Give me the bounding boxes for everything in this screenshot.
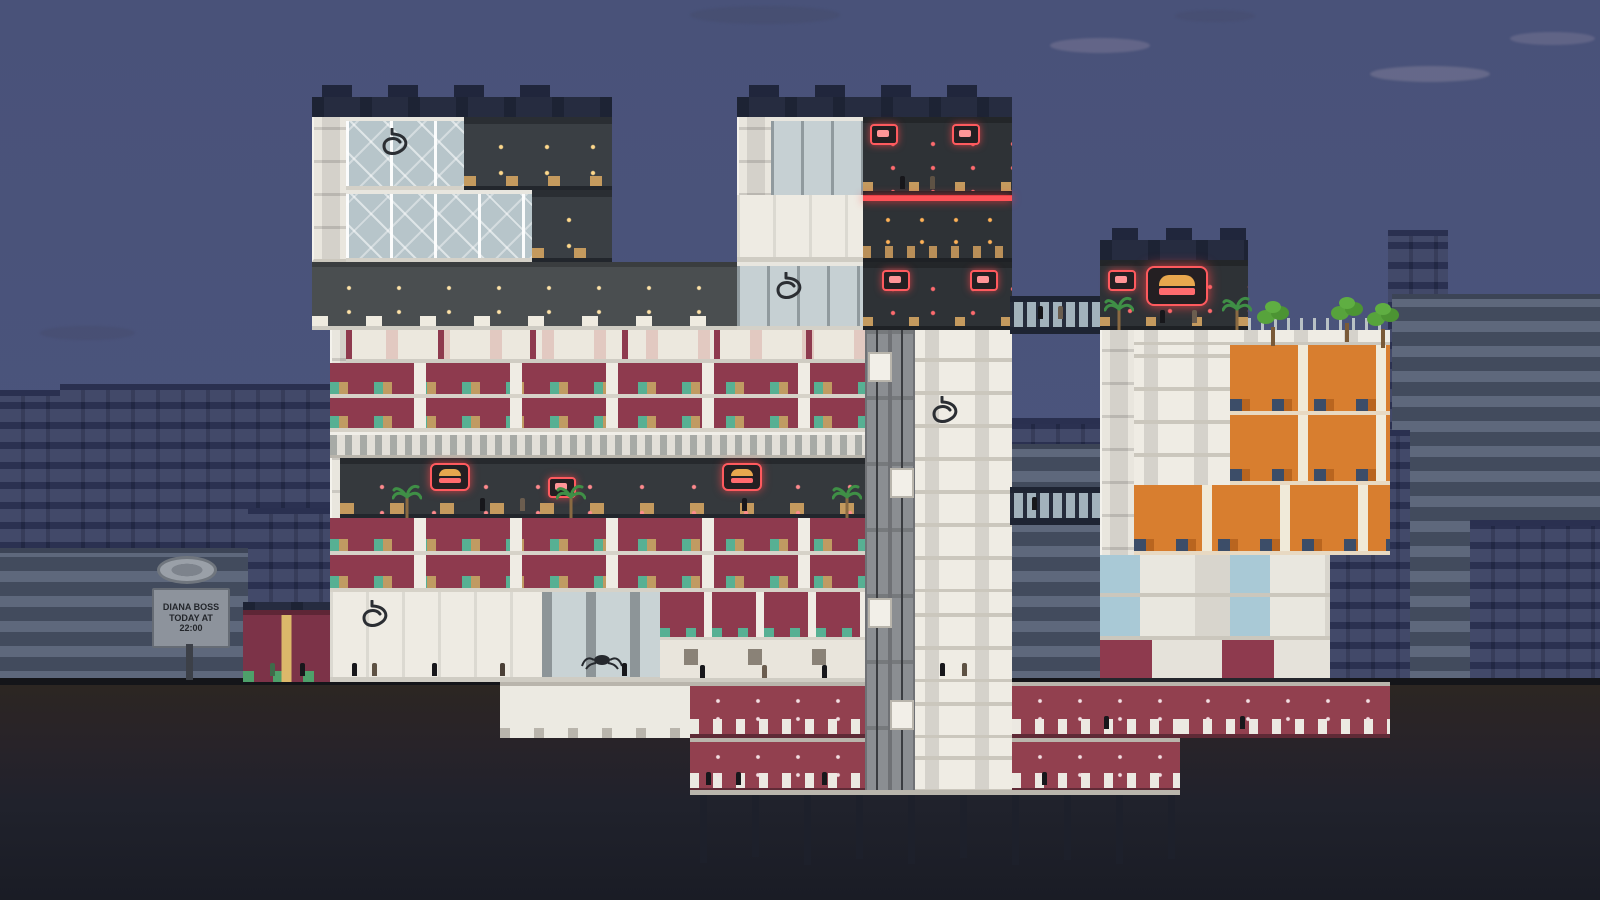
billboard-pole (186, 644, 193, 680)
street-lounge[interactable] (243, 610, 330, 682)
person[interactable] (706, 772, 711, 785)
hotel-floor[interactable] (330, 555, 865, 592)
apartments[interactable] (1134, 485, 1390, 555)
person[interactable] (1192, 310, 1197, 323)
person[interactable] (500, 663, 505, 676)
apartments[interactable] (1230, 415, 1390, 485)
mechanical-floor[interactable] (330, 432, 865, 458)
roof-vent (1112, 228, 1138, 240)
neon-sign (1108, 270, 1136, 291)
person[interactable] (1032, 497, 1037, 510)
lab-floor[interactable] (1100, 555, 1330, 597)
elevator-car[interactable] (890, 700, 914, 730)
person[interactable] (1160, 310, 1165, 323)
person[interactable] (1038, 306, 1043, 319)
person[interactable] (520, 498, 525, 511)
piling (804, 795, 811, 865)
club-bar[interactable] (863, 195, 1012, 262)
skybridge-lower[interactable] (1010, 487, 1105, 525)
roof-vent (1220, 228, 1246, 240)
cloud (690, 6, 840, 24)
neon-sign (952, 124, 980, 145)
billboard-time: 22:00 (154, 623, 228, 634)
piling (1116, 795, 1123, 864)
billboard-logo (157, 556, 217, 584)
cloud (1175, 10, 1255, 22)
atrium-lower[interactable] (346, 190, 532, 262)
parapet-mid-tower (737, 97, 1012, 117)
cloud (1050, 38, 1150, 53)
basement-services[interactable] (690, 682, 865, 738)
basement-laundry[interactable] (1012, 738, 1180, 792)
palm (1222, 296, 1252, 332)
person[interactable] (1042, 772, 1047, 785)
piling (1064, 795, 1071, 860)
piling (960, 795, 967, 858)
bg-right-dark (1470, 520, 1600, 682)
person[interactable] (1104, 716, 1109, 729)
roof-vent (1166, 228, 1192, 240)
person[interactable] (930, 176, 935, 189)
piling (856, 795, 863, 859)
person[interactable] (736, 772, 741, 785)
person[interactable] (622, 663, 627, 676)
person[interactable] (270, 663, 275, 676)
hotel-rooms-small[interactable] (660, 592, 865, 640)
palm (556, 484, 586, 520)
billboard-when: TODAY AT (154, 613, 228, 624)
person[interactable] (1240, 716, 1245, 729)
basement-offices[interactable] (500, 682, 690, 738)
basement-laundry[interactable] (690, 738, 865, 792)
spiral (352, 600, 392, 638)
palm (832, 484, 862, 520)
neon-strip (863, 196, 1012, 201)
ground-floor-shops[interactable] (1100, 640, 1330, 682)
spider (580, 652, 624, 670)
tree (1330, 296, 1364, 342)
sky-restaurant[interactable] (532, 190, 612, 262)
person[interactable] (432, 663, 437, 676)
hotel-floor[interactable] (330, 518, 865, 555)
person[interactable] (372, 663, 377, 676)
billboard: DIANA BOSS TODAY AT 22:00 (150, 554, 230, 684)
person[interactable] (700, 665, 705, 678)
elevator-car[interactable] (890, 468, 914, 498)
person[interactable] (742, 498, 747, 511)
cloud (40, 326, 135, 340)
palm (1104, 296, 1134, 332)
piling (752, 795, 759, 857)
basement-corridor[interactable] (915, 738, 1012, 792)
piling (1168, 795, 1175, 859)
person[interactable] (822, 665, 827, 678)
person[interactable] (352, 663, 357, 676)
spiral (922, 396, 962, 434)
person[interactable] (940, 663, 945, 676)
billboard-panel: DIANA BOSS TODAY AT 22:00 (152, 588, 230, 648)
cloud (1510, 32, 1595, 45)
apartments[interactable] (1230, 345, 1390, 415)
elevator-car[interactable] (868, 598, 892, 628)
lounge-roof (243, 602, 330, 610)
person[interactable] (962, 663, 967, 676)
person[interactable] (300, 663, 305, 676)
cloud (1370, 66, 1490, 82)
elevator-column[interactable] (312, 117, 346, 262)
neon-sign (882, 270, 910, 291)
tree (1256, 300, 1290, 346)
basement-services[interactable] (1012, 682, 1180, 738)
parapet-left-tower (312, 97, 612, 117)
person[interactable] (480, 498, 485, 511)
foundation-slab (690, 790, 1180, 795)
person[interactable] (900, 176, 905, 189)
construction-floor[interactable] (346, 330, 865, 363)
neon-sign (870, 124, 898, 145)
piling (1012, 795, 1019, 865)
hotel-floor[interactable] (330, 398, 865, 432)
piling (908, 795, 915, 864)
corridor-stack[interactable] (915, 330, 1012, 592)
game-viewport[interactable]: DIANA BOSS TODAY AT 22:00 (0, 0, 1600, 900)
basement-corridor[interactable] (915, 682, 1012, 738)
basement-services[interactable] (1180, 682, 1390, 738)
neon-burger (722, 463, 762, 491)
spiral (372, 128, 412, 166)
elevator-car[interactable] (868, 352, 892, 382)
cafe-floor[interactable] (312, 262, 737, 330)
neon-burger (430, 463, 470, 491)
sky-restaurant[interactable] (464, 117, 612, 190)
office-floor[interactable] (1100, 597, 1330, 640)
person[interactable] (1058, 306, 1063, 319)
neon-sign (970, 270, 998, 291)
parapet-right-tower (1100, 240, 1248, 260)
piling (700, 795, 707, 863)
person[interactable] (822, 772, 827, 785)
neon-burger-lg (1146, 266, 1208, 306)
hotel-floor[interactable] (330, 363, 865, 398)
white-lobby[interactable] (737, 195, 863, 262)
person[interactable] (762, 665, 767, 678)
billboard-artist: DIANA BOSS (154, 602, 228, 613)
palm (392, 484, 422, 520)
tree (1366, 302, 1400, 348)
spiral (766, 272, 806, 310)
